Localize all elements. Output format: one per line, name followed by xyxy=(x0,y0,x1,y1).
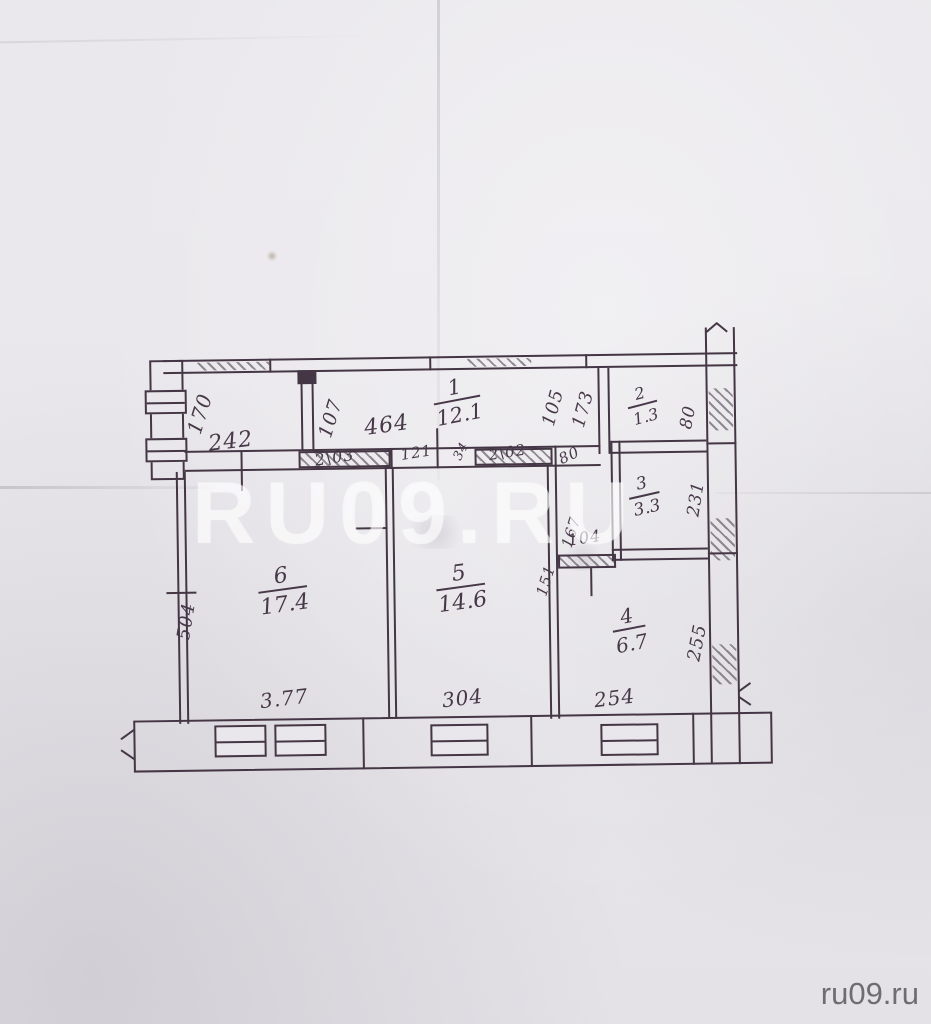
wall-exterior-top-hatch-a xyxy=(197,362,269,371)
room-label-4: 4 6.7 xyxy=(609,603,651,658)
dim-tick xyxy=(436,428,438,448)
wall-joint xyxy=(429,356,431,370)
wall-break-mark xyxy=(739,682,752,692)
dim-105: 105 xyxy=(538,387,568,429)
room-label-5: 5 14.6 xyxy=(433,559,489,618)
scanned-floor-plan-photo: 1 12.1 2 1.3 3 3.3 4 6.7 5 14.6 6 17.4 1… xyxy=(0,0,931,1024)
dim-231: 231 xyxy=(683,480,708,518)
room-label-6: 6 17.4 xyxy=(255,561,311,620)
wall-room1-room2 xyxy=(597,368,610,454)
wall-room5-room6 xyxy=(385,467,398,719)
room-5-area: 14.6 xyxy=(437,585,489,618)
wall-joint xyxy=(708,552,738,554)
window-room6-left xyxy=(214,725,266,758)
room-label-1: 1 12.1 xyxy=(429,372,485,431)
room-label-2: 2 1.3 xyxy=(623,382,663,429)
wall-room3-bottom xyxy=(612,548,708,561)
left-wall-window-lower xyxy=(145,438,187,463)
wall-stub xyxy=(297,370,316,384)
opening-jamb xyxy=(436,447,438,468)
opening-jamb xyxy=(554,446,556,467)
window-room6-right xyxy=(274,724,326,757)
room-label-3: 3 3.3 xyxy=(625,473,665,522)
wall-left-room6 xyxy=(176,472,190,724)
dim-255: 255 xyxy=(683,622,711,663)
watermark-corner: ru09.ru xyxy=(821,976,919,1012)
dim-504: 504 xyxy=(173,601,200,641)
wall-exterior-right-hatch-c xyxy=(712,644,737,684)
wall-room3-left xyxy=(610,441,622,561)
left-wall-window-upper xyxy=(145,390,187,415)
opening-jamb xyxy=(390,448,392,469)
window-room4 xyxy=(600,723,658,756)
dim-242: 242 xyxy=(207,427,255,457)
wall-hall-room4 xyxy=(558,554,616,569)
dim-80-room2: 80 xyxy=(676,404,700,431)
dim-170: 170 xyxy=(182,391,217,437)
wall-joint xyxy=(269,359,271,373)
floor-plan-drawing: 1 12.1 2 1.3 3 3.3 4 6.7 5 14.6 6 17.4 1… xyxy=(0,0,931,1024)
wall-joint xyxy=(585,354,587,368)
wall-room2-bottom xyxy=(610,440,706,454)
dim-464: 464 xyxy=(363,410,411,441)
dim-tick xyxy=(356,527,388,529)
wall-break-mark xyxy=(120,729,134,740)
door-leaf xyxy=(590,568,592,596)
window-room5 xyxy=(430,724,488,757)
room-6-area: 17.4 xyxy=(259,587,311,620)
dim-tick xyxy=(166,592,196,594)
room-4-area: 6.7 xyxy=(613,627,650,659)
wall-break-mark xyxy=(739,696,752,706)
dim-254: 254 xyxy=(593,684,637,713)
dim-304: 304 xyxy=(441,684,485,713)
dim-377: 3.77 xyxy=(259,684,310,714)
wall-joint xyxy=(706,442,736,444)
wall-exterior-top-hatch-b xyxy=(467,358,531,367)
dim-107: 107 xyxy=(314,397,347,441)
dim-173: 173 xyxy=(568,388,598,430)
wall-exterior-right-hatch-a xyxy=(709,388,734,430)
